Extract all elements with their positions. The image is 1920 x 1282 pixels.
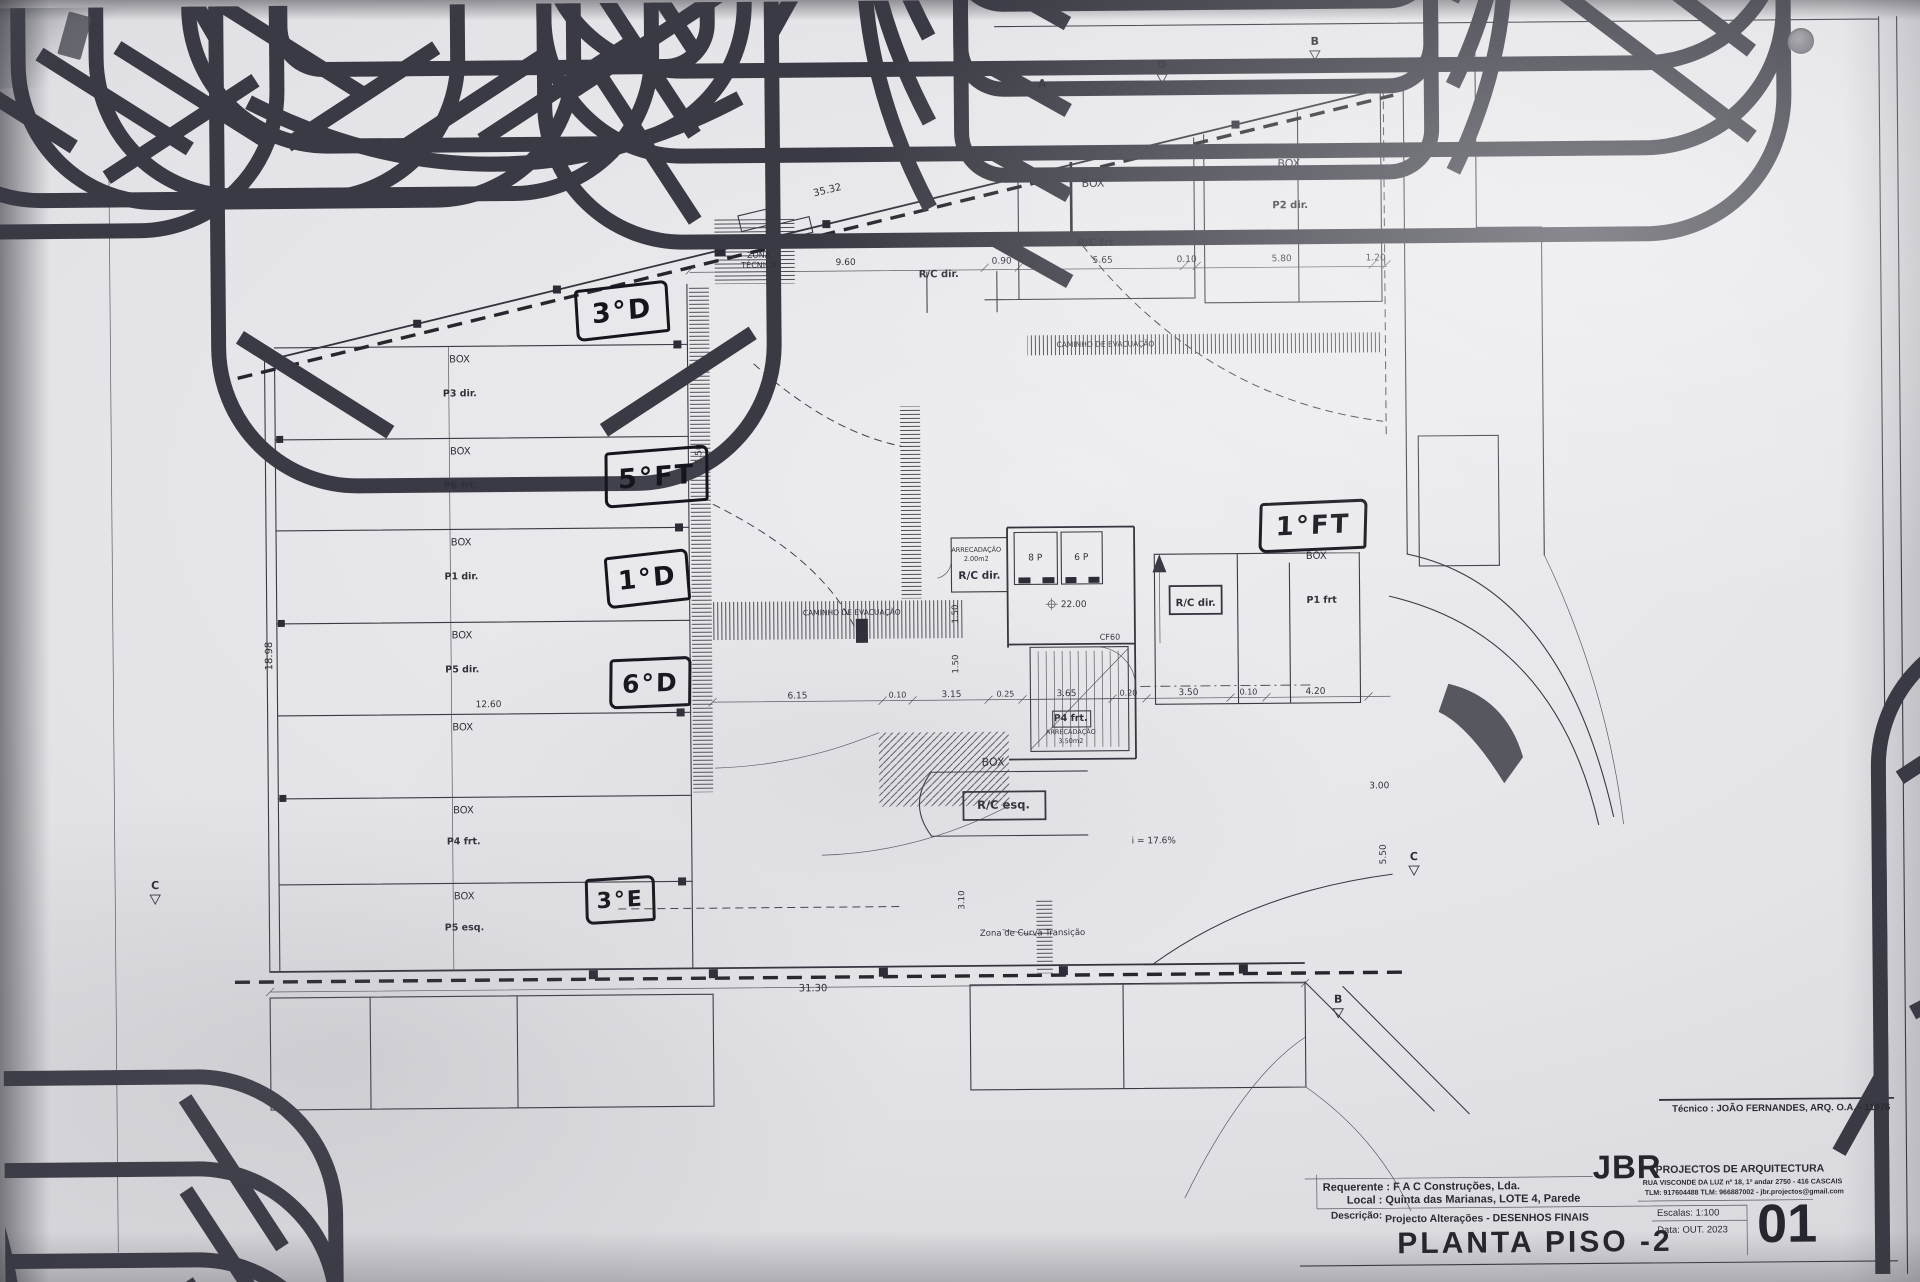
plan-label: P5 esq.: [445, 922, 484, 933]
plan-label: 0.90: [992, 257, 1012, 267]
plan-label: 9.60: [836, 258, 856, 268]
description-label: Descrição:: [1331, 1210, 1382, 1221]
section-marker: D: [1157, 58, 1167, 83]
client-line: Requerente : F A C Construções, Lda.: [1323, 1180, 1520, 1194]
plan-label: CF60: [1100, 633, 1120, 642]
plan-label: ARRECADAÇÃO: [951, 545, 1001, 554]
plan-label: 6 P: [1074, 553, 1089, 563]
plan-label: 1.50: [951, 655, 961, 674]
plan-label: 2.00m2: [964, 555, 989, 563]
section-marker: B: [1310, 35, 1320, 60]
handwritten-label: 1°D: [604, 548, 692, 609]
hatch-layer: [688, 212, 1388, 976]
plan-label: R/C frt: [1077, 238, 1114, 249]
plan-label: 5.50: [1379, 844, 1389, 864]
plan-label: P3 dir.: [443, 388, 477, 399]
plan-label: Zona de Curva Transição: [980, 928, 1085, 939]
plan-label: BOX: [982, 756, 1005, 769]
plan-label: BOX: [454, 891, 475, 902]
handwritten-label: 5°FT: [604, 444, 708, 508]
section-marker-letter: B: [1334, 993, 1343, 1006]
section-marker: C: [150, 879, 160, 904]
plan-label: 0.10: [1240, 687, 1258, 696]
plan-label: 8 P: [1028, 553, 1043, 563]
plan-label: 4.20: [1305, 687, 1325, 697]
plan-label: P2 dir.: [1272, 200, 1308, 211]
plan-label: 0.10: [1177, 255, 1197, 265]
plan-label: TÉCNICA: [740, 259, 777, 270]
plan-label: ARRECADAÇÃO: [1046, 727, 1096, 736]
date-field: Data: OUT. 2023: [1657, 1224, 1728, 1236]
plan-label: 3.50m2: [1058, 737, 1083, 745]
floor-plan-drawing: ZONATÉCNICA35.329.600.905.650.105.801.20…: [0, 0, 1920, 1282]
plan-label: R/C dir.: [958, 570, 1000, 582]
plan-label: 5.65: [1093, 256, 1113, 266]
plan-label: 5.80: [1272, 254, 1292, 264]
section-marker-letter: A: [1038, 77, 1047, 90]
plan-label: ZONA: [747, 251, 771, 260]
site-line: Local : Quinta das Marianas, LOTE 4, Par…: [1347, 1193, 1581, 1207]
firm-tagline: PROJECTOS DE ARQUITECTURA: [1656, 1162, 1825, 1175]
section-marker: C: [1409, 850, 1419, 875]
plan-label: BOX: [1306, 551, 1327, 562]
section-marker-letter: C: [151, 879, 159, 892]
plan-label: 35.32: [812, 182, 842, 199]
plan-label: 1.20: [1366, 253, 1386, 263]
plan-label: BOX: [452, 722, 473, 733]
plan-label: P6 frt.: [444, 480, 478, 491]
plan-label: P4 frt.: [447, 836, 481, 847]
plan-label: BOX: [449, 354, 470, 365]
plan-label: R/C esq.: [977, 797, 1030, 811]
plan-label: R/C dir.: [1176, 598, 1216, 609]
plan-label: 0.10: [889, 690, 907, 699]
drawing-title: PLANTA PISO -2: [1397, 1225, 1673, 1261]
plan-label: 1.50: [951, 605, 961, 624]
paper-sheet: ZONATÉCNICA35.329.600.905.650.105.801.20…: [0, 0, 1920, 1282]
markers-layer: ADBCCB: [143, 34, 1421, 1028]
plan-label: 6.15: [787, 691, 807, 701]
section-marker-letter: C: [1410, 850, 1418, 863]
handwritten-label: 6°D: [609, 656, 691, 710]
sheet-number: 01: [1757, 1193, 1818, 1256]
plan-label: 3.15: [941, 690, 961, 700]
curves-layer: [713, 550, 1627, 1217]
plan-label: 18.98: [264, 642, 275, 671]
plan-label: P5 dir.: [445, 664, 479, 675]
plan-label: 31.30: [799, 983, 828, 994]
plan-label: P1 frt: [1306, 595, 1337, 606]
plan-label: P4 frt.: [1054, 713, 1088, 724]
plan-label: 3.65: [1056, 689, 1076, 699]
plan-label: 12.60: [476, 700, 502, 710]
plan-label: P1 dir.: [444, 571, 478, 582]
handwritten-label: 3°D: [574, 280, 671, 343]
section-marker-letter: D: [1157, 58, 1166, 71]
punch-hole-artifact: [1788, 28, 1814, 54]
plan-label: R/C dir.: [919, 269, 959, 280]
photographed-drawing: ZONATÉCNICA35.329.600.905.650.105.801.20…: [0, 0, 1920, 1282]
plan-label: BOX: [451, 537, 472, 548]
car-icon: [0, 1033, 340, 1282]
section-marker-flag: [150, 895, 160, 904]
car-icon: [0, 1216, 341, 1282]
section-marker-flag: [1333, 1009, 1343, 1018]
handwritten-label: 3°E: [585, 875, 656, 925]
description-value: Projecto Alterações - DESENHOS FINAIS: [1385, 1212, 1589, 1226]
plan-label: 3.00: [1369, 781, 1389, 791]
section-marker-flag: [1409, 866, 1419, 875]
plan-label: BOX: [453, 805, 474, 816]
plan-label: CAMINHO DE EVACUAÇÃO: [1057, 339, 1155, 349]
plan-label: BOX: [1277, 157, 1300, 170]
dashed-layer: [227, 88, 1408, 982]
columns-layer: [259, 119, 1398, 996]
section-marker-letter: B: [1311, 35, 1320, 48]
plan-label: 22.00: [1061, 600, 1087, 610]
section-marker: B: [1333, 993, 1343, 1018]
plan-label: 0.20: [1120, 688, 1138, 697]
plan-label: BOX: [450, 446, 471, 457]
plan-label: 3.10: [957, 890, 967, 909]
plan-label: CAMINHO DE EVACUAÇÃO: [803, 608, 901, 618]
labels-layer: ZONATÉCNICA35.329.600.905.650.105.801.20…: [260, 156, 1393, 999]
plan-label: 3.50: [1178, 688, 1198, 698]
plan-label: BOX: [451, 630, 472, 641]
technician-line: Técnico : JOÃO FERNANDES, ARQ. O.A. - 11…: [1672, 1102, 1890, 1115]
handwritten-label: 1°FT: [1258, 499, 1367, 554]
plan-label: BOX: [1082, 177, 1105, 190]
plan-label: i = 17.6%: [1132, 836, 1177, 846]
scale-field: Escalas: 1:100: [1657, 1207, 1719, 1219]
plan-label: 0.25: [997, 690, 1015, 699]
